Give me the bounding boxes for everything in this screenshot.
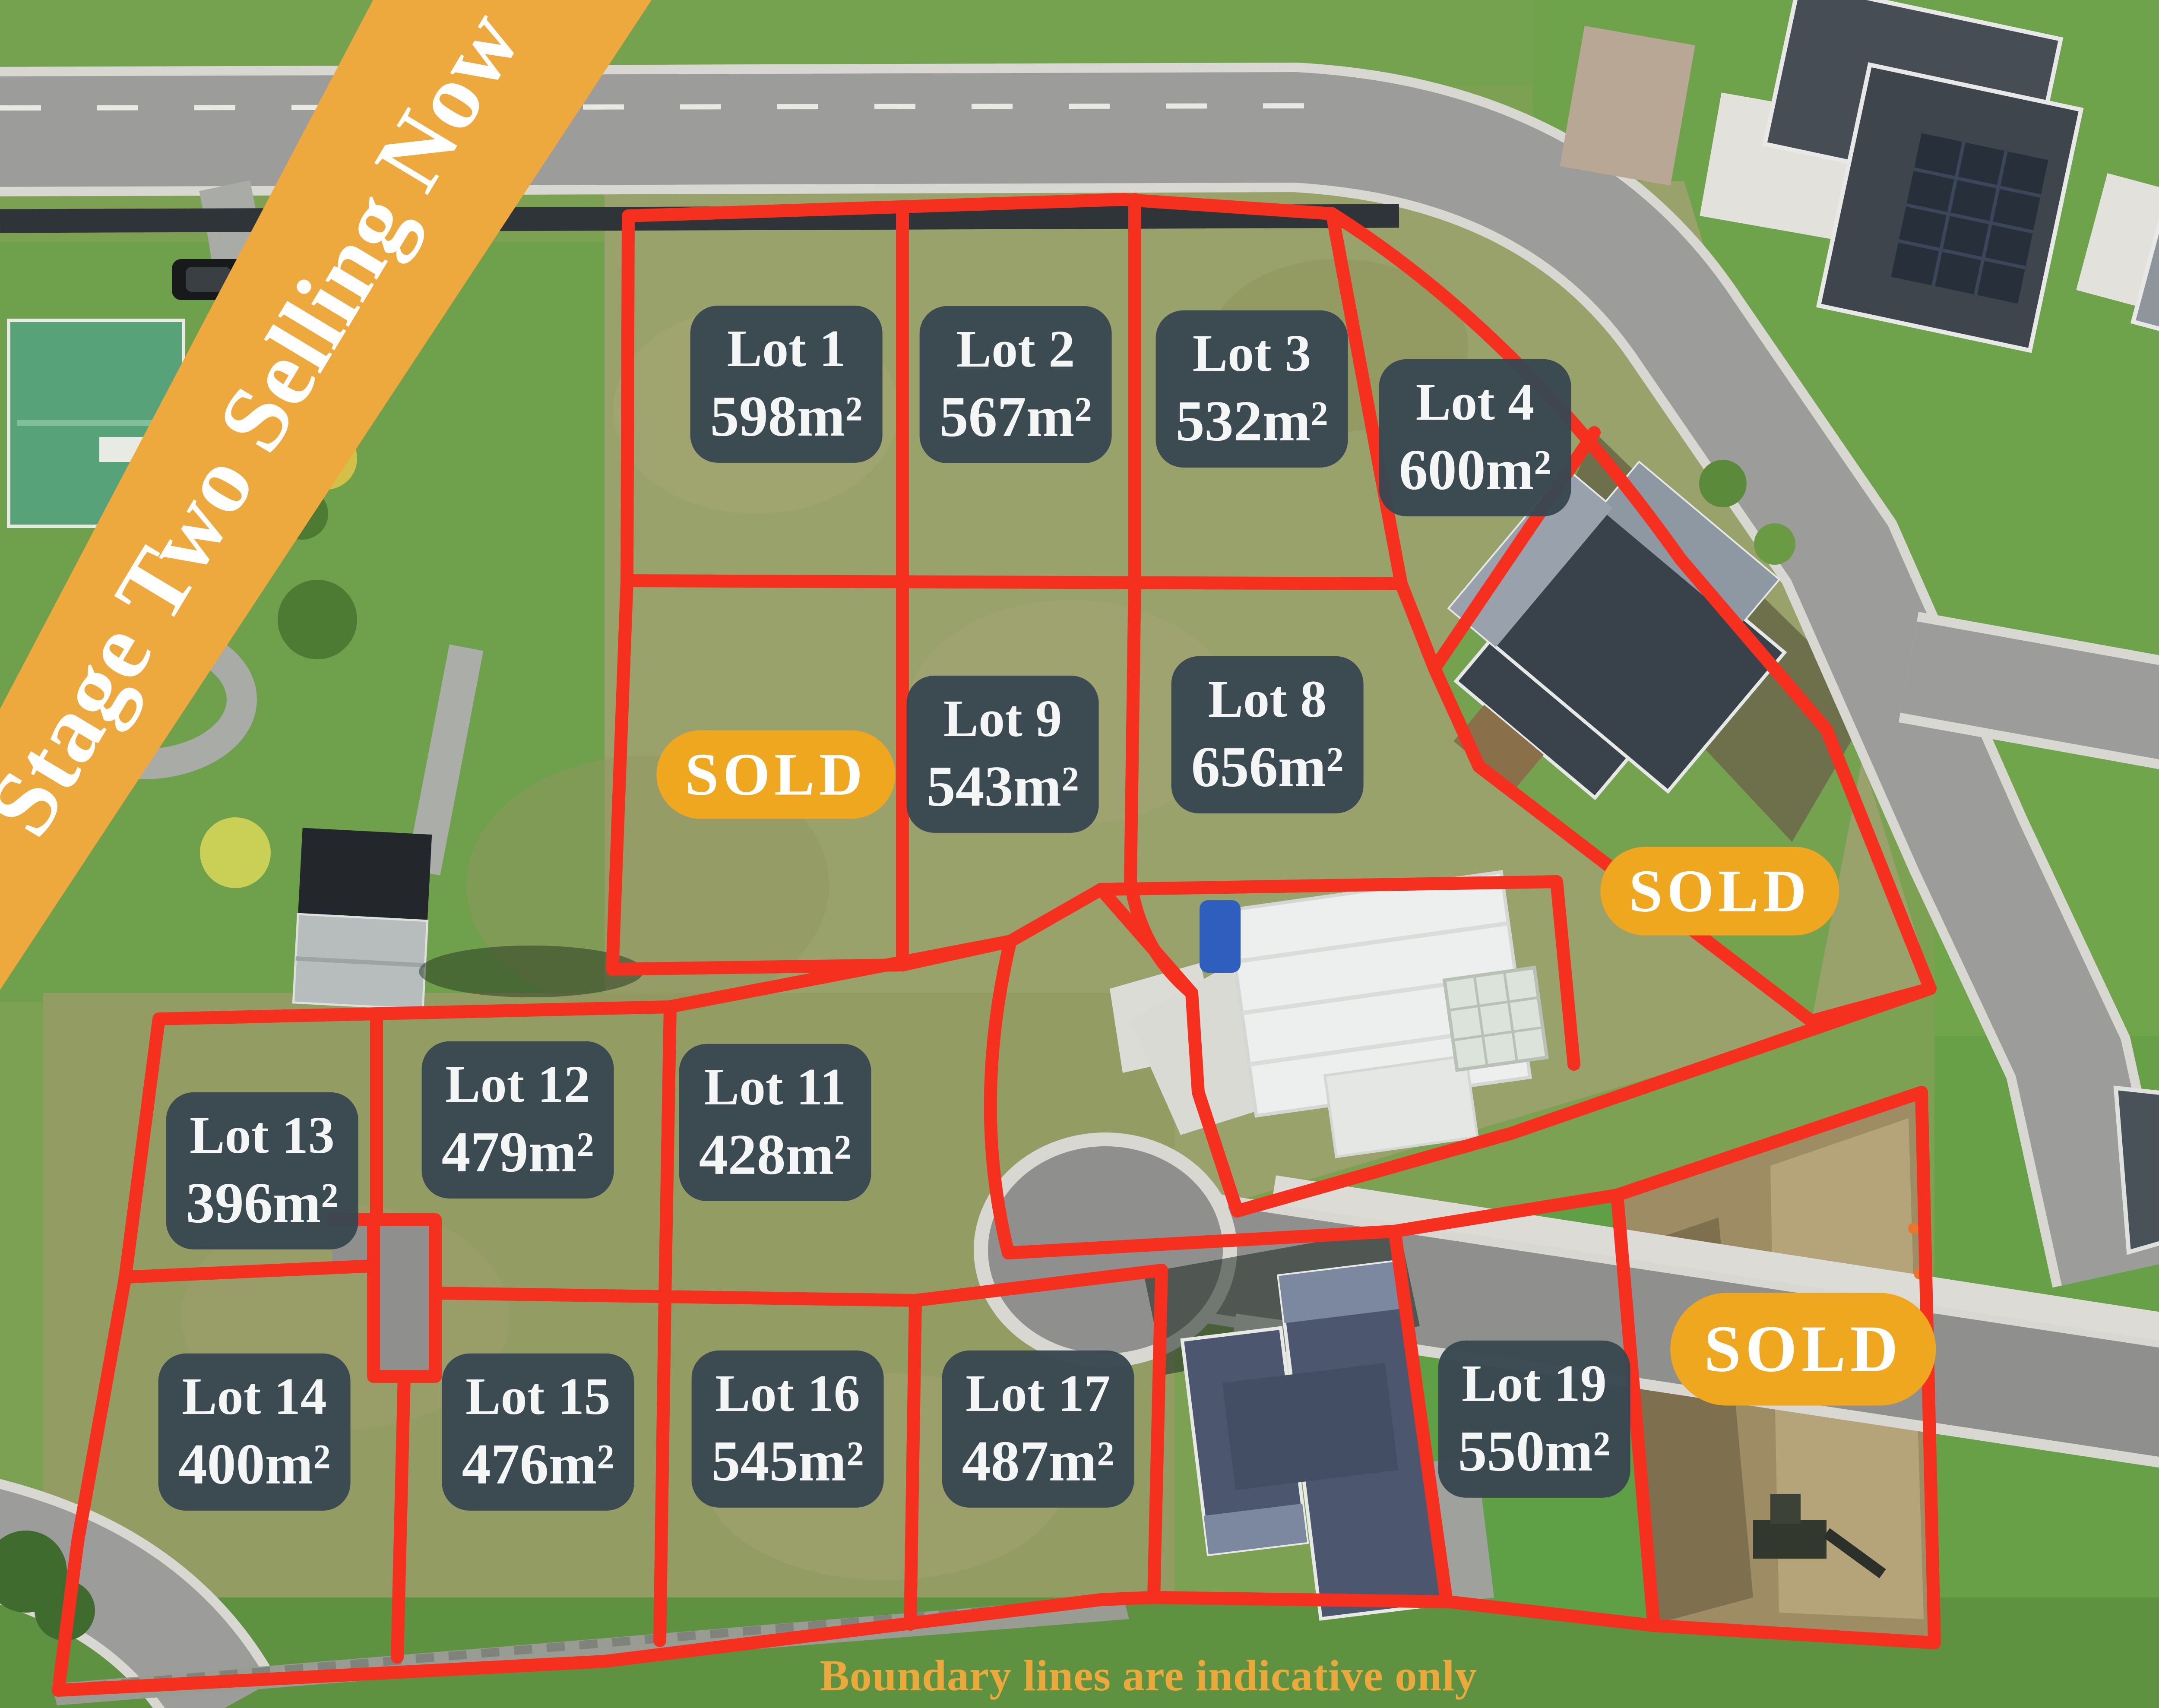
- lot-14-area: 400m²: [178, 1429, 331, 1499]
- lot-19-name: Lot 19: [1458, 1352, 1611, 1416]
- lot-12-name: Lot 12: [442, 1053, 594, 1117]
- lot-1-area: 598m²: [710, 381, 863, 452]
- lot-14-name: Lot 14: [178, 1365, 331, 1429]
- sold-badge-west: SOLD: [656, 731, 895, 819]
- lot-11-name: Lot 11: [699, 1055, 852, 1120]
- lot-label-15: Lot 15 476m²: [442, 1354, 634, 1511]
- lot-label-1: Lot 1 598m²: [690, 306, 883, 463]
- blue-car: [1200, 900, 1241, 973]
- lot-16-area: 545m²: [712, 1426, 864, 1496]
- lot-16-name: Lot 16: [712, 1362, 864, 1426]
- lot-label-13: Lot 13 396m²: [166, 1092, 358, 1249]
- lot-label-14: Lot 14 400m²: [158, 1354, 351, 1511]
- lot-label-8: Lot 8 656m²: [1171, 656, 1364, 813]
- lot-4-area: 600m²: [1399, 435, 1551, 505]
- lot-13-name: Lot 13: [186, 1104, 339, 1168]
- lot-label-3: Lot 3 532m²: [1156, 310, 1348, 468]
- subdivision-aerial-map: Stage Two Selling Now Boundary lines are…: [0, 0, 2159, 1708]
- garden-shed: [293, 828, 432, 1009]
- sold-badge-south: SOLD: [1670, 1293, 1936, 1406]
- lot-13-area: 396m²: [186, 1168, 339, 1238]
- lot-1-name: Lot 1: [710, 317, 863, 381]
- lot-label-4: Lot 4 600m²: [1379, 359, 1571, 516]
- lot-label-9: Lot 9 543m²: [907, 676, 1099, 833]
- lot-label-19: Lot 19 550m²: [1438, 1341, 1630, 1498]
- lot-3-area: 532m²: [1176, 386, 1328, 456]
- lot-17-name: Lot 17: [962, 1362, 1114, 1426]
- lot-label-2: Lot 2 567m²: [920, 306, 1112, 463]
- lot-17-area: 487m²: [962, 1426, 1114, 1496]
- lot-15-name: Lot 15: [462, 1365, 614, 1429]
- lot-11-area: 428m²: [699, 1120, 852, 1190]
- footer-note: Boundary lines are indicative only: [820, 1651, 1478, 1700]
- lot-9-area: 543m²: [927, 751, 1079, 822]
- lot-4-name: Lot 4: [1399, 370, 1551, 435]
- sold-badge-east: SOLD: [1600, 847, 1839, 936]
- lot-2-name: Lot 2: [940, 317, 1092, 382]
- lot-12-area: 479m²: [442, 1117, 594, 1187]
- lot-label-16: Lot 16 545m²: [692, 1351, 884, 1508]
- lot-label-11: Lot 11 428m²: [679, 1044, 871, 1201]
- lot-8-name: Lot 8: [1191, 667, 1344, 732]
- lot-15-area: 476m²: [462, 1429, 614, 1499]
- lot-label-17: Lot 17 487m²: [942, 1351, 1134, 1508]
- lot-8-area: 656m²: [1191, 732, 1344, 802]
- lot-9-name: Lot 9: [927, 687, 1079, 751]
- lot-3-name: Lot 3: [1176, 322, 1328, 386]
- lot-label-12: Lot 12 479m²: [422, 1041, 614, 1199]
- lot-19-area: 550m²: [1458, 1416, 1611, 1487]
- lot-2-area: 567m²: [940, 382, 1092, 452]
